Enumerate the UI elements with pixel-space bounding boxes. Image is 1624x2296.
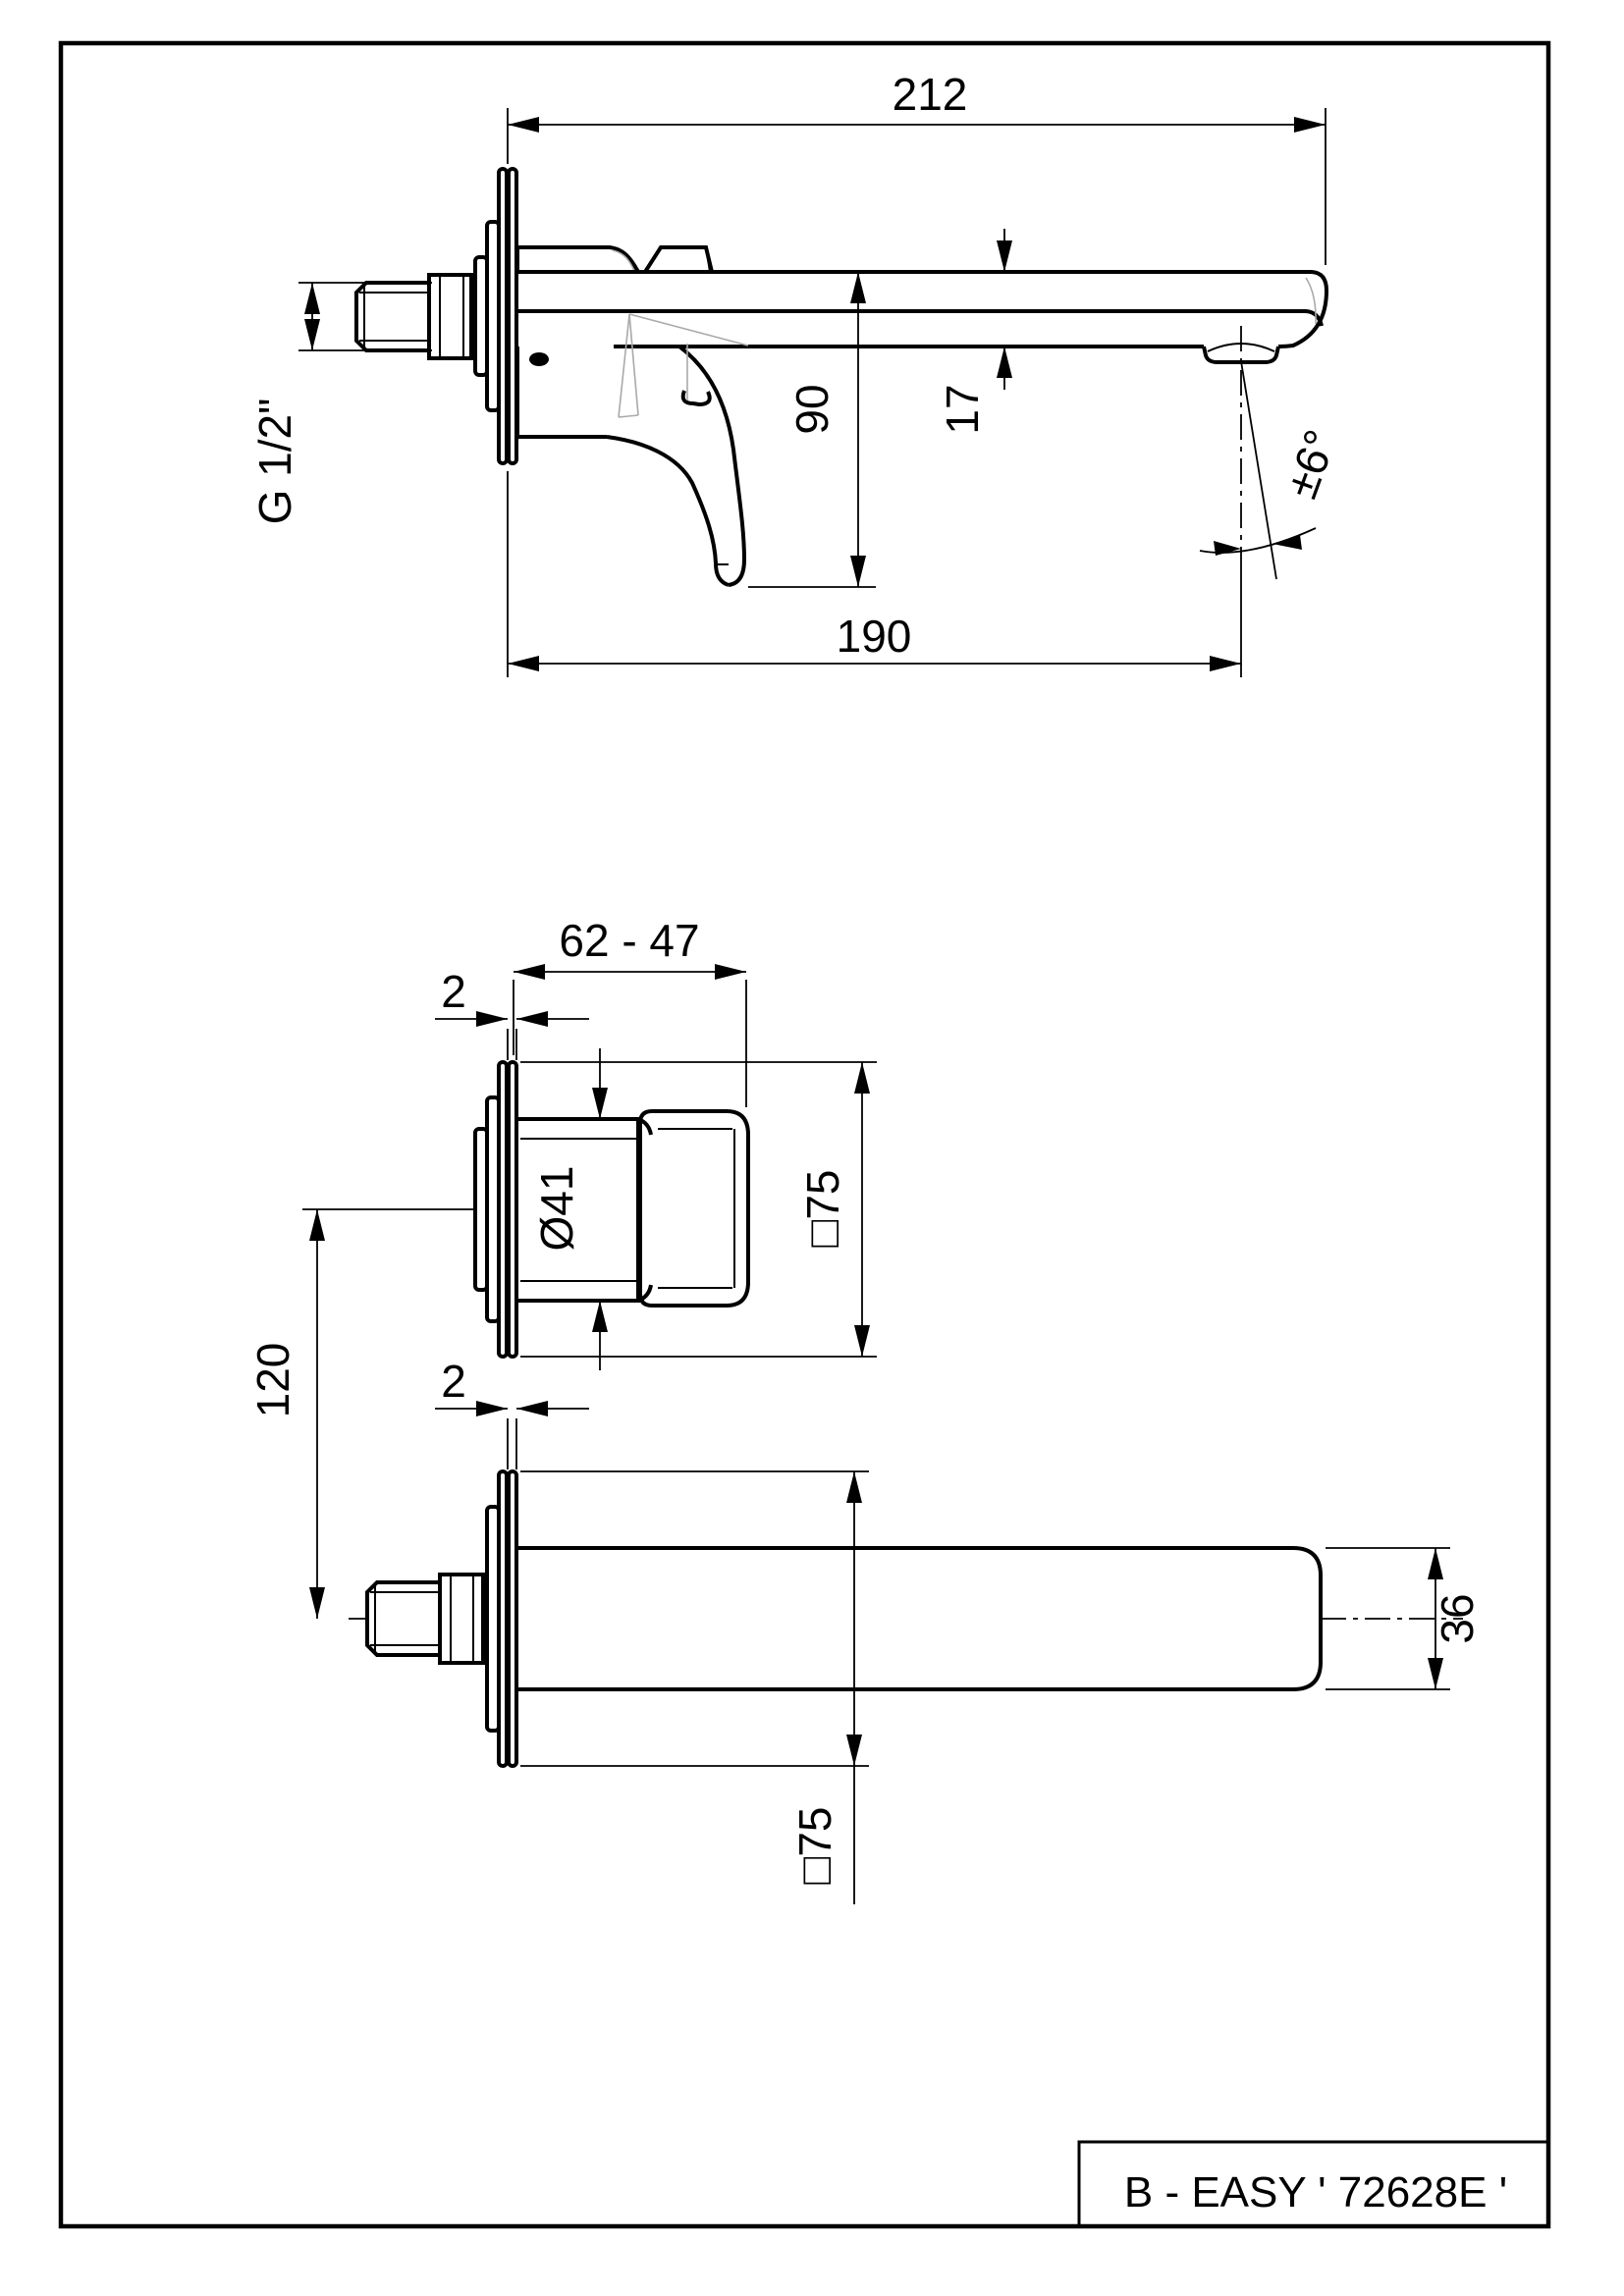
dim-plate-thickness-middle-text: 2 (441, 966, 466, 1017)
plate-sheet-a (499, 169, 507, 463)
dim-plate-size-middle-text: □75 (797, 1170, 848, 1248)
dim-swivel-angle-text: ±6° (1275, 423, 1347, 505)
dim-plate-thickness-middle: 2 (435, 966, 589, 1060)
spout-top-edge (516, 272, 1326, 291)
dim-spout-width: 36 (1326, 1548, 1483, 1689)
dim-spout-thickness-text: 17 (937, 384, 988, 434)
handle-plan-outline (640, 1111, 748, 1306)
dim-overall-length-text: 212 (893, 69, 968, 120)
dim-plate-thickness-bottom: 2 (435, 1356, 589, 1469)
construction-line (629, 314, 748, 346)
dim-height-below-spout-text: 90 (786, 384, 838, 434)
dim-spout-thickness: 17 (937, 229, 1012, 435)
valve-plan-view: 62 - 47 2 Ø41 □75 (302, 915, 877, 1370)
dim-spout-projection-text: 190 (837, 611, 912, 662)
dim-plate-thickness-bottom-text: 2 (441, 1356, 466, 1407)
drawing-sheet: B - EASY ' 72628E ' (0, 0, 1624, 2296)
spout-tip-round (1278, 291, 1326, 347)
dim-swivel-angle: ±6° (1200, 326, 1346, 677)
dim-center-distance: 120 (247, 1209, 325, 1619)
technical-drawing: B - EASY ' 72628E ' (0, 0, 1624, 2296)
dim-spout-projection: 190 (508, 471, 1241, 677)
drawing-frame (61, 43, 1548, 2226)
spout-bar-outline (516, 1548, 1321, 1689)
dim-mounting-depth: 62 - 47 (514, 915, 746, 1107)
dim-center-distance-text: 120 (247, 1343, 298, 1418)
spout-tip-inner-curve (1306, 278, 1316, 324)
dim-plate-size-bottom-text: □75 (789, 1807, 840, 1885)
plate-sheet-b (509, 169, 516, 463)
hex-adapter (429, 275, 471, 358)
dim-overall-length: 212 (508, 69, 1326, 265)
model-label: B - EASY ' 72628E ' (1124, 2168, 1507, 2216)
construction-wedge (619, 314, 638, 417)
dim-spout-width-text: 36 (1432, 1593, 1483, 1643)
body-upper-block (517, 247, 638, 272)
plate-sheet-a (499, 1062, 507, 1357)
inlet-nipple (367, 1582, 440, 1655)
dim-mounting-depth-text: 62 - 47 (559, 915, 699, 966)
dim-inlet-thread-text: G 1/2" (249, 399, 300, 525)
spout-mid-edge (516, 311, 1322, 326)
dim-body-diameter-text: Ø41 (531, 1166, 582, 1252)
handle-outer-edge (679, 347, 744, 585)
set-screw-dot (529, 352, 549, 366)
plate-sheet-a (499, 1471, 507, 1766)
side-view: 212 17 90 190 (249, 69, 1346, 677)
hex-adapter (440, 1575, 483, 1663)
dim-height-below-spout: 90 (748, 272, 876, 587)
spout-plan-view: 120 2 36 □75 (247, 1209, 1483, 1904)
handle-inner-edge (607, 437, 729, 585)
handle-top-block (645, 247, 712, 272)
